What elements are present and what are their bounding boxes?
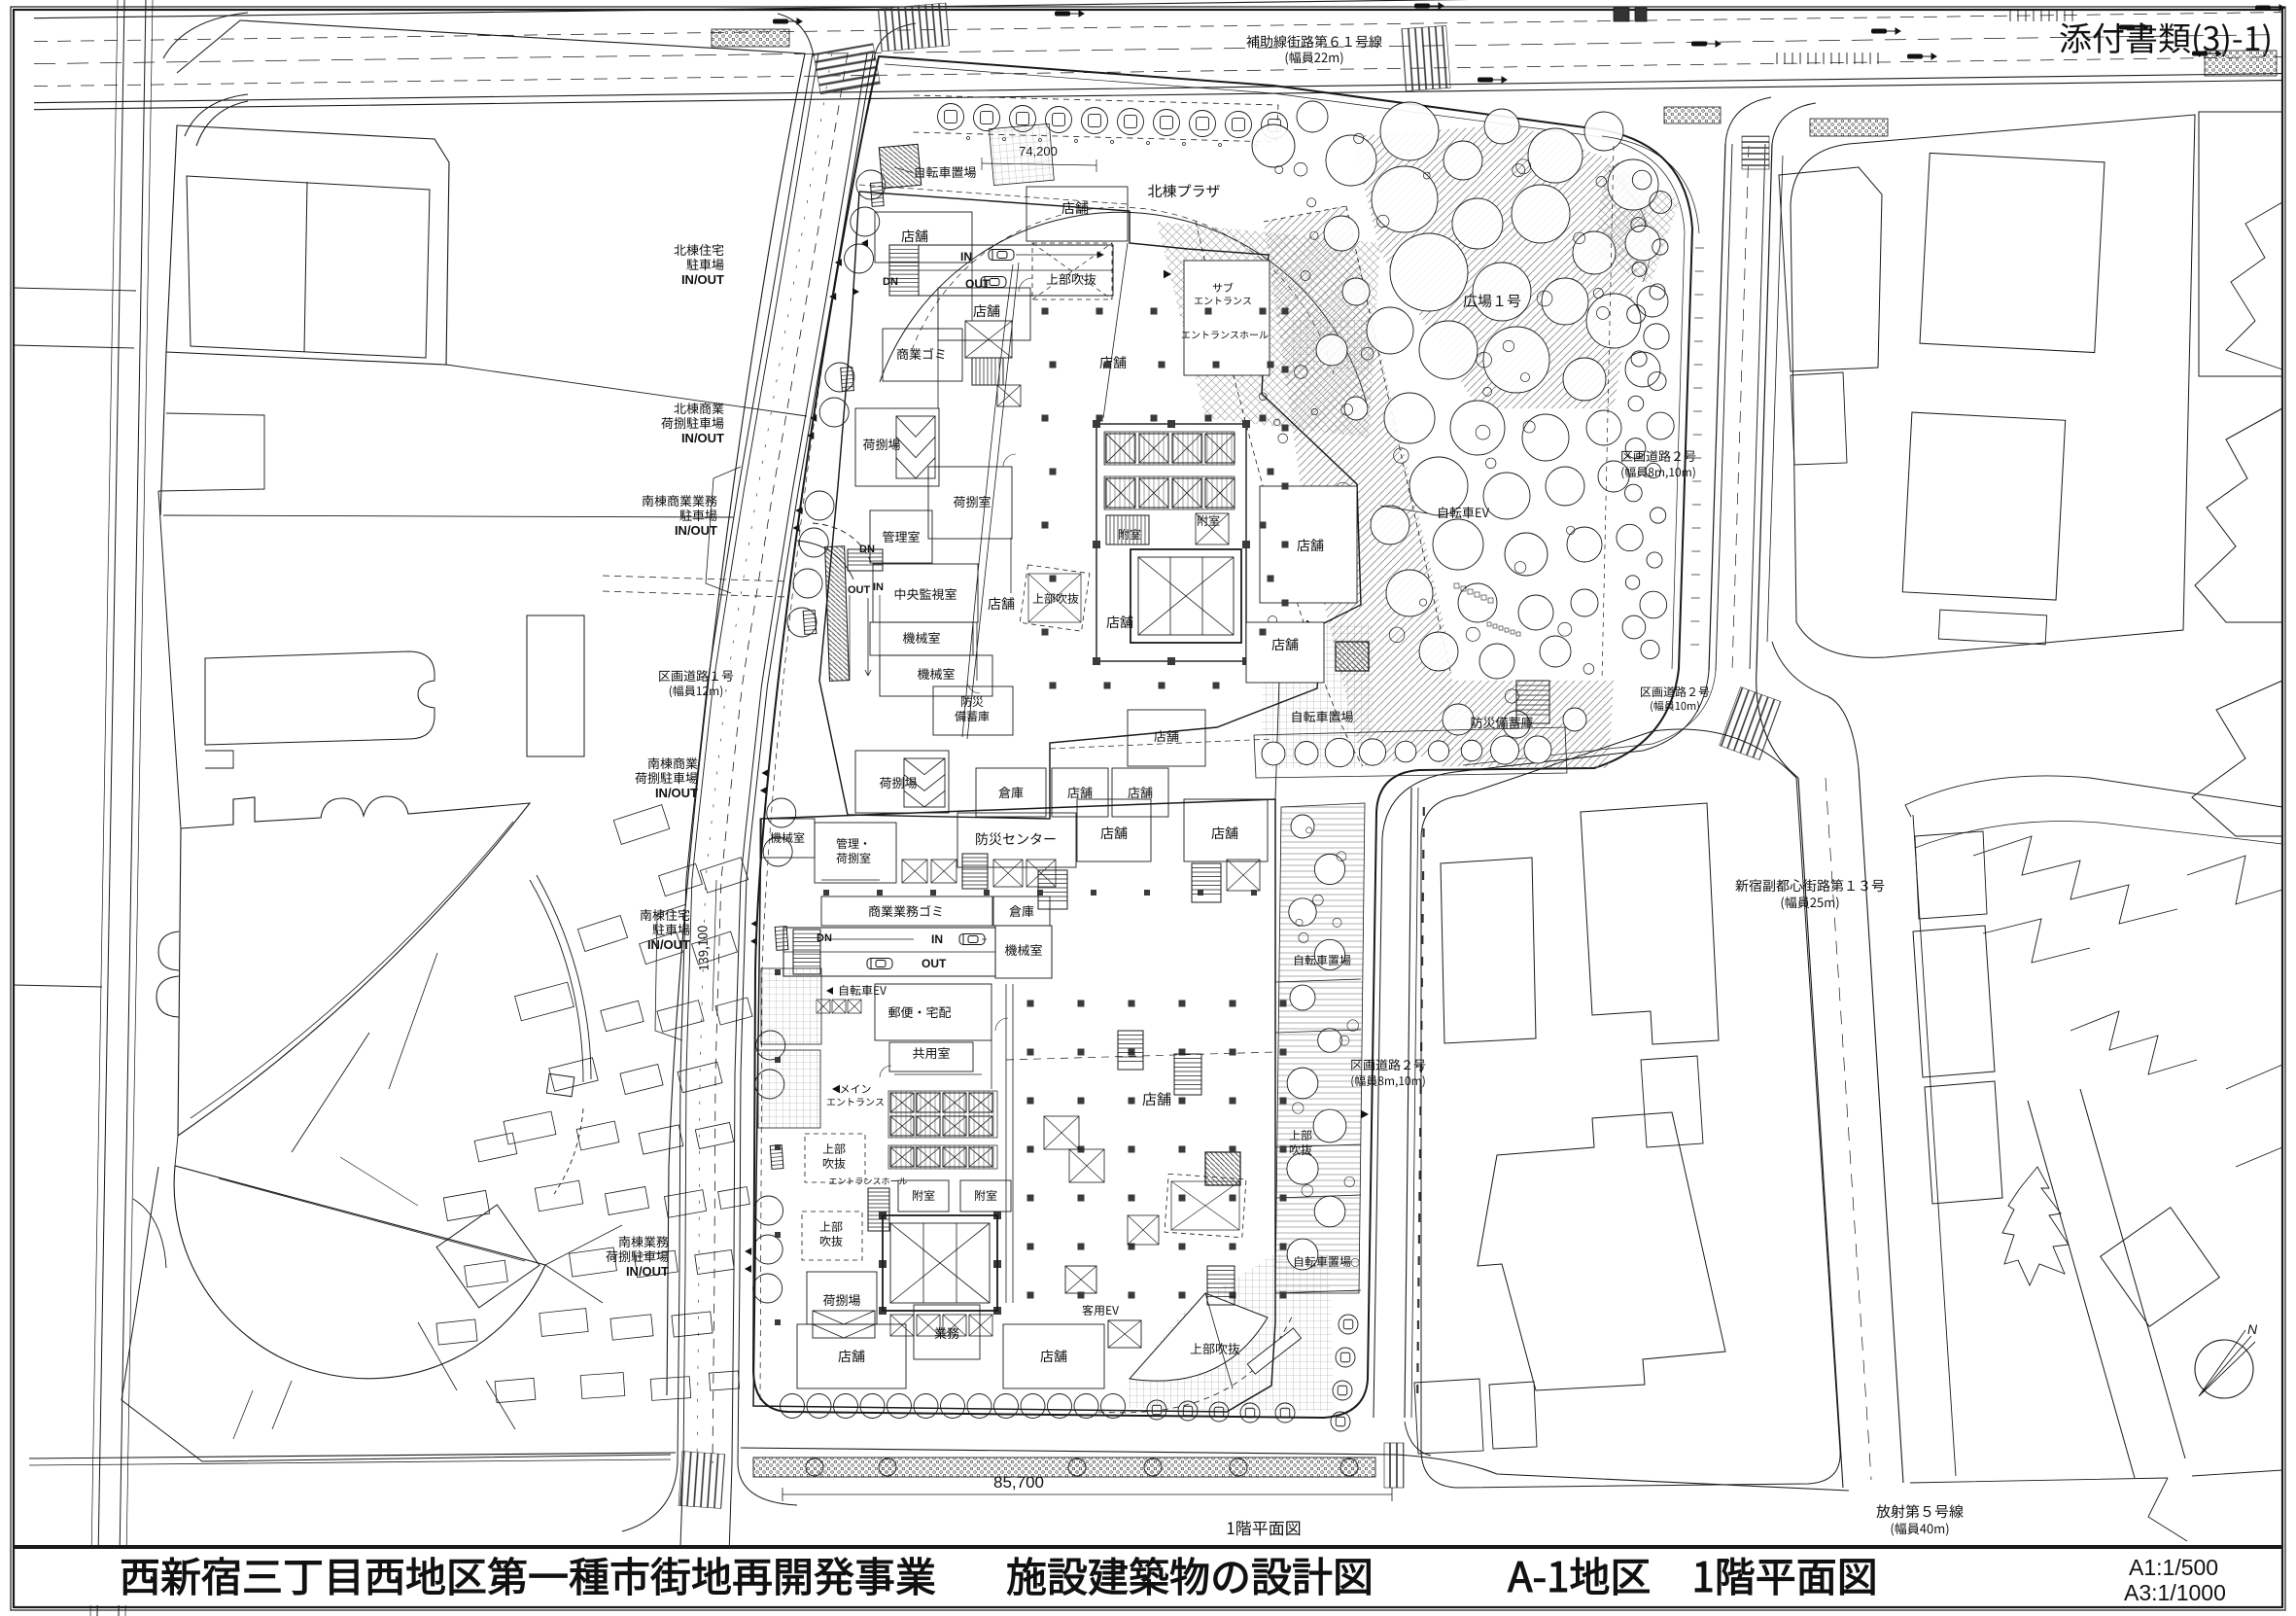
svg-text:OUT: OUT <box>965 277 991 291</box>
svg-text:IN/OUT: IN/OUT <box>681 272 724 287</box>
svg-text:IN: IN <box>873 581 884 593</box>
svg-text:A1:1/500: A1:1/500 <box>2129 1555 2218 1580</box>
svg-text:IN: IN <box>960 250 972 263</box>
svg-text:IN: IN <box>931 932 943 946</box>
svg-text:N: N <box>2247 1321 2258 1337</box>
svg-text:IN/OUT: IN/OUT <box>681 431 724 445</box>
svg-text:OUT: OUT <box>922 957 947 970</box>
svg-text:DN: DN <box>817 932 832 944</box>
svg-text:IN/OUT: IN/OUT <box>655 786 698 800</box>
svg-text:IN/OUT: IN/OUT <box>675 523 717 538</box>
svg-text:DN: DN <box>883 276 898 288</box>
svg-text:A3:1/1000: A3:1/1000 <box>2124 1580 2226 1605</box>
svg-text:OUT: OUT <box>848 584 871 596</box>
svg-text:85,700: 85,700 <box>993 1473 1044 1492</box>
